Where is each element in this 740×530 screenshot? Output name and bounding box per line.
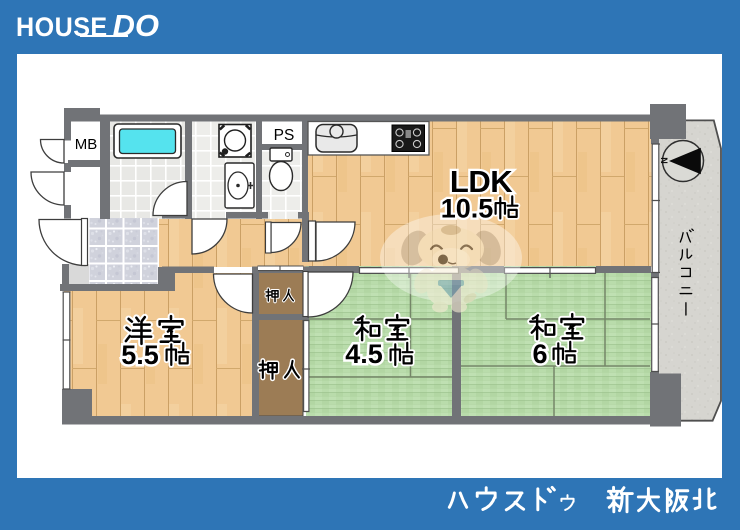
svg-text:5.5: 5.5 bbox=[121, 340, 159, 370]
svg-text:10.5: 10.5 bbox=[441, 194, 494, 224]
svg-text:PS: PS bbox=[274, 127, 295, 144]
svg-text:MB: MB bbox=[75, 136, 98, 153]
svg-text:N: N bbox=[659, 157, 669, 164]
svg-text:6: 6 bbox=[532, 339, 547, 369]
svg-text:4.5: 4.5 bbox=[345, 339, 383, 369]
